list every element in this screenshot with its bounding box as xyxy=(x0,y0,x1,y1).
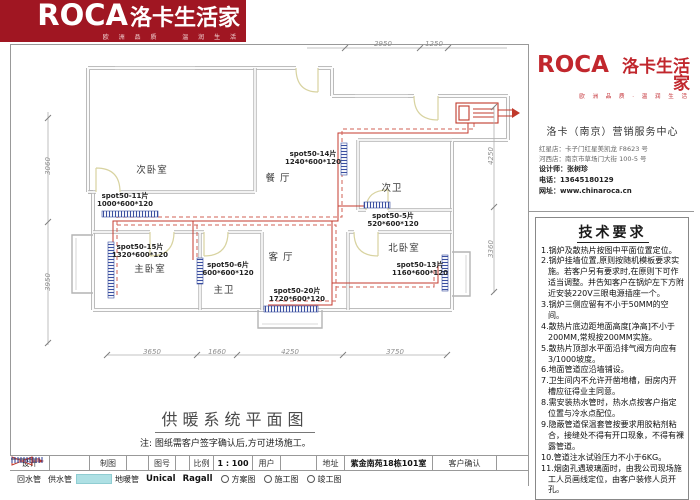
technical-requirements-box: 技术要求 1.锅炉及散热片按图中平面位置定位。 2.锅炉挂墙位置,原则按随机模板… xyxy=(535,217,689,500)
field-value-confirm xyxy=(497,456,528,470)
dimension-bottom-2: 1660 xyxy=(202,348,232,356)
construction-drawing-radio[interactable] xyxy=(264,475,272,483)
radiator-label: spot50-5片520*600*120 xyxy=(358,212,428,228)
radiator-label: spot50-11片1000*600*120 xyxy=(90,192,160,208)
designer-name: 设计师：张树珍 xyxy=(539,164,686,175)
radiator-label: spot50-14片1240*600*120 xyxy=(278,150,348,166)
dimension-right-1: 4250 xyxy=(487,142,495,170)
dimension-bottom-3: 4250 xyxy=(275,348,305,356)
brand-logo-chinese: 洛卡生活家 xyxy=(130,8,240,30)
room-label-bed2: 次卧室 xyxy=(122,162,182,176)
floor-pipe-label: 地暖管 xyxy=(115,474,139,485)
field-label-draft: 制图 xyxy=(90,456,127,470)
sidebar-logo-tagline: 欧 洲 品 质 · 温 润 生 活 xyxy=(537,95,690,101)
dimension-left-2: 3950 xyxy=(44,268,52,296)
technical-requirements-title: 技术要求 xyxy=(541,222,684,242)
tech-item-2: 2.锅炉挂墙位置,原则按随机模板要求实施。若客户另有要求时,在原则下可作适当调整… xyxy=(541,256,684,300)
boiler xyxy=(456,103,520,123)
brand-tagline: 欧 洲 品 质 温 润 生 活 xyxy=(103,32,240,41)
sidebar-logo-text: ROCA xyxy=(537,54,609,77)
field-value-address: 紫金南苑18栋101室 xyxy=(345,456,433,470)
field-label-confirm: 客户确认 xyxy=(433,456,497,470)
sidebar-logo: ROCA 洛卡生活家 欧 洲 品 质 · 温 润 生 活 xyxy=(537,54,690,101)
construction-drawing-label: 施工图 xyxy=(275,474,299,485)
completion-drawing-label: 竣工图 xyxy=(318,474,342,485)
dimension-top-1: 2950 xyxy=(368,40,398,48)
dimension-right-2: 3360 xyxy=(487,235,495,263)
brand-banner: ROCA 洛卡生活家 欧 洲 品 质 温 润 生 活 xyxy=(0,0,246,42)
legend-row: 回水管 供水管 地暖管 Unical Ragall 方案图 施工图 竣工图 xyxy=(10,471,528,487)
dimension-bottom-1: 3650 xyxy=(137,348,167,356)
website-url: 网址：www.chinaroca.cn xyxy=(539,186,686,197)
dimension-top-2: 1250 xyxy=(419,40,449,48)
drawing-note: 注: 图纸需客户签字确认后,方可进场施工。 xyxy=(140,436,380,449)
tech-item-4: 4.散热片底边距地面高度[净高]不小于200MM,常规按200MM实施。 xyxy=(541,322,684,344)
tech-item-1: 1.锅炉及散热片按图中平面位置定位。 xyxy=(541,246,684,257)
field-value-draft xyxy=(127,456,149,470)
room-label-master: 主卧室 xyxy=(120,261,180,275)
field-label-scale: 比例 xyxy=(190,456,214,470)
title-block-fields: 设计 制图 图号 比例 1 : 100 用户 地址 紫金南苑18栋101室 客户… xyxy=(10,456,528,471)
tech-item-11: 11.烟囱孔遇玻璃面时，由我公司现场施工人员画线定位，由客户装修人员开孔。 xyxy=(541,464,684,497)
tech-item-5: 5.散热片顶部水平面沿排气阀方向应有3/1000坡度。 xyxy=(541,344,684,366)
tech-item-9: 9.隐蔽管道保温套管按要求用胶粘剂粘合，接缝处不得有开口现象，不得有裸露管道。 xyxy=(541,420,684,453)
field-label-number: 图号 xyxy=(149,456,176,470)
ragall-label: Ragall xyxy=(183,474,213,484)
scheme-drawing-label: 方案图 xyxy=(232,474,256,485)
phone-number: 电话：13645180129 xyxy=(539,175,686,186)
room-label-dining: 餐 厅 xyxy=(248,170,308,184)
store-address-1: 红星店：卡子门红星美凯龙 F8623 号 xyxy=(539,144,686,154)
supply-pipe-label: 供水管 xyxy=(48,474,72,485)
completion-drawing-radio[interactable] xyxy=(307,475,315,483)
room-label-bath2: 次卫 xyxy=(362,180,422,194)
tech-item-3: 3.锅炉三侧应留有不小于50MM的空间。 xyxy=(541,300,684,322)
tech-item-7: 7.卫生间内不允许开凿地槽，厨房内开槽应征得业主同意。 xyxy=(541,376,684,398)
dimension-bottom-4: 3750 xyxy=(380,348,410,356)
drawing-title: 供暖系统平面图 xyxy=(155,406,315,433)
sidebar-contact: 洛卡（南京）营销服务中心 红星店：卡子门红星美凯龙 F8623 号 河西店：南京… xyxy=(529,123,694,197)
sidebar-logo-chinese: 洛卡生活家 xyxy=(610,59,690,93)
floor-pipe-symbol xyxy=(76,474,112,484)
field-value-number xyxy=(176,456,190,470)
dimension-left-1: 3060 xyxy=(44,152,52,180)
radiator-label: spot50-6片600*600*120 xyxy=(193,261,263,277)
unical-label: Unical xyxy=(146,474,176,484)
sidebar-divider xyxy=(529,211,694,212)
sidebar: ROCA 洛卡生活家 欧 洲 品 质 · 温 润 生 活 洛卡（南京）营销服务中… xyxy=(528,44,694,486)
field-value-client xyxy=(281,456,317,470)
tech-item-8: 8.需安装热水管时，热水点按客户指定位置与冷水点配位。 xyxy=(541,398,684,420)
field-label-client: 用户 xyxy=(253,456,281,470)
radiator-label: spot50-15片1320*600*120 xyxy=(105,243,175,259)
field-value-design xyxy=(50,456,90,470)
tech-item-10: 10.管道注水试验压力不小于6KG。 xyxy=(541,453,684,464)
room-label-bath1: 主卫 xyxy=(194,282,254,296)
field-label-address: 地址 xyxy=(317,456,345,470)
return-pipe-label: 回水管 xyxy=(17,474,41,485)
scheme-drawing-radio[interactable] xyxy=(221,475,229,483)
title-block: 设计 制图 图号 比例 1 : 100 用户 地址 紫金南苑18栋101室 客户… xyxy=(10,455,528,486)
field-value-scale: 1 : 100 xyxy=(214,456,253,470)
tech-item-6: 6.地面管道应沿墙铺设。 xyxy=(541,365,684,376)
brand-logo-text: ROCA xyxy=(37,1,128,30)
service-center-name: 洛卡（南京）营销服务中心 xyxy=(539,123,686,138)
drawing-sheet: { "banner": { "brand": "ROCA", "brand_cn… xyxy=(0,0,700,490)
radiator-label: spot50-20片1720*600*120 xyxy=(262,287,332,303)
room-label-north: 北卧室 xyxy=(374,240,434,254)
store-address-2: 河西店：南京市草场门大街 100-5 号 xyxy=(539,154,686,164)
radiator-label: spot50-13片1160*600*120 xyxy=(385,261,455,277)
